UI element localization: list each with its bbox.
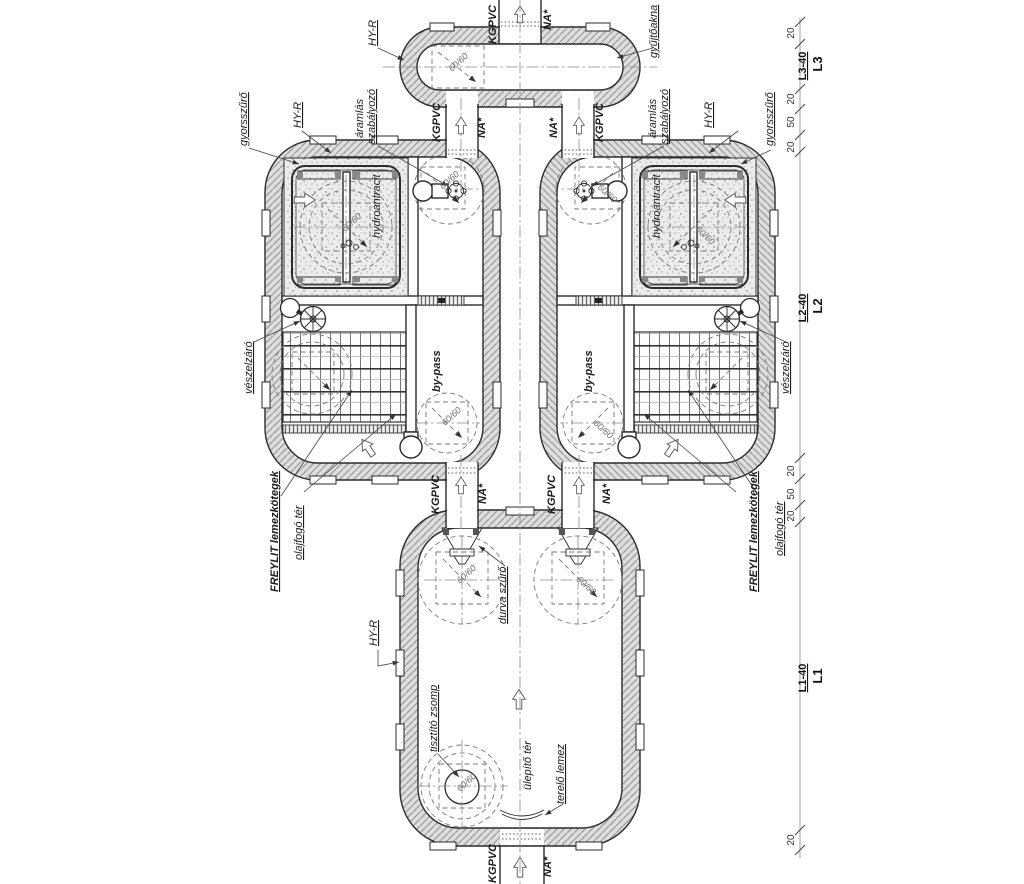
plan-drawing: HY-R KGPVC NA* gyűjtőakna 60/60 gyorsszű… — [0, 0, 1024, 884]
label-aramlas-left-2: szabályozó — [366, 89, 378, 144]
label-veszelzaro-left: vészelzáró — [243, 341, 255, 394]
label-aramlas-right-2: szabályozó — [659, 89, 671, 144]
label-tisztito-zsomp: tisztító zsomp — [428, 685, 440, 752]
label-veszelzaro-right: vészelzáró — [780, 341, 792, 394]
label-bypass-right: by-pass — [583, 350, 595, 392]
label-na-pipe-br: NA* — [601, 483, 613, 504]
label-gyorsszuro-right: gyorsszűrő — [764, 91, 776, 146]
separator-tank-left — [262, 98, 501, 530]
label-kgpvc-outlet: KGPVC — [487, 843, 499, 883]
label-hydroantracit-right: hydroantracit — [651, 173, 663, 238]
dim-50-b: 50 — [786, 488, 797, 500]
dim-l1: L1-40 — [797, 664, 809, 693]
label-hyr-right: HY-R — [703, 102, 715, 128]
label-kgpvc-pipe-tr: KGPVC — [594, 102, 606, 142]
label-kgpvc-pipe-bl: KGPVC — [430, 474, 442, 514]
axis-l3: L3 — [810, 56, 825, 71]
axis-l1: L1 — [810, 668, 825, 683]
label-hyr-left: HY-R — [292, 102, 304, 128]
label-freylit-left: FREYLIT lemezkötegek — [269, 470, 281, 592]
label-hyr-bottom: HY-R — [368, 620, 380, 646]
label-olajfogo-right: olajfogó tér — [774, 500, 786, 556]
label-na-outlet: NA* — [542, 856, 554, 877]
separator-tank-right — [539, 98, 778, 530]
label-gyorsszuro-left: gyorsszűrő — [238, 91, 250, 146]
label-durva-szuro: durva szűrő — [497, 566, 509, 624]
dim-20-a: 20 — [786, 27, 797, 39]
dim-l2: L2-40 — [797, 294, 809, 323]
label-aramlas-left-1: áramlás — [354, 98, 366, 138]
label-hydroantracit-left: hydroantracit — [371, 173, 383, 238]
label-kgpvc-inlet: KGPVC — [487, 4, 499, 44]
dim-20-c: 20 — [786, 141, 797, 153]
label-terelo-lemez: terelő lemez — [555, 744, 567, 804]
label-ulepito-ter: ülepítő tér — [522, 740, 534, 790]
dimension-chain: 20 L3-40 L3 20 50 20 L2-40 L2 20 50 20 L… — [786, 17, 825, 858]
label-olajfogo-left: olajfogó tér — [293, 504, 305, 560]
plan-svg: HY-R KGPVC NA* gyűjtőakna 60/60 gyorsszű… — [0, 0, 1024, 884]
label-na-inlet: NA* — [542, 9, 554, 30]
dim-20-d: 20 — [786, 465, 797, 477]
label-na-pipe-tl: NA* — [476, 117, 488, 138]
dim-20-b: 20 — [786, 93, 797, 105]
label-gyujtoakna: gyűjtőakna — [648, 5, 660, 58]
dim-20-e: 20 — [786, 510, 797, 522]
axis-l2: L2 — [810, 298, 825, 313]
label-freylit-right: FREYLIT lemezkötegek — [748, 470, 760, 592]
label-kgpvc-pipe-br: KGPVC — [546, 474, 558, 514]
dim-50-a: 50 — [786, 116, 797, 128]
label-aramlas-right-1: áramlás — [647, 98, 659, 138]
label-bypass-left: by-pass — [431, 350, 443, 392]
dim-20-f: 20 — [786, 834, 797, 846]
label-na-pipe-tr: NA* — [548, 117, 560, 138]
label-hyr-oval: HY-R — [367, 20, 379, 46]
label-na-pipe-bl: NA* — [477, 483, 489, 504]
label-kgpvc-pipe-tl: KGPVC — [431, 102, 443, 142]
dim-l3: L3-40 — [797, 52, 809, 81]
